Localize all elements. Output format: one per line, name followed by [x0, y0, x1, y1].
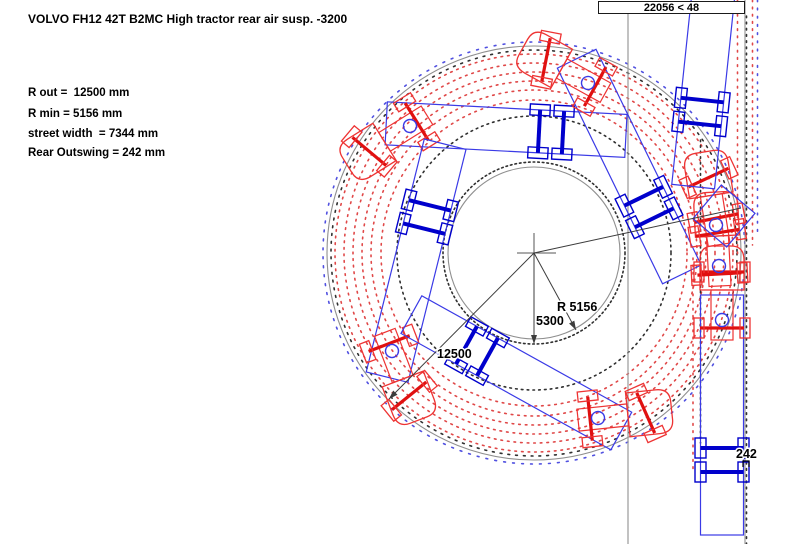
swept-path-plot: 12500R 51565300242	[0, 0, 800, 544]
vehicle-title: VOLVO FH12 42T B2MC High tractor rear ai…	[28, 12, 347, 26]
dim-label-outswing: 242	[736, 447, 757, 461]
annotation-radius-outer: 12500	[389, 253, 534, 399]
measure-r-out: R out = 12500 mm	[28, 87, 129, 99]
lane-exit-trailer-trailer	[666, 0, 745, 189]
dim-label-radius-inner: R 5156	[557, 300, 597, 314]
snapshot-upper-right-tractor	[509, 21, 620, 119]
measure-street-width: street width = 7344 mm	[28, 128, 158, 140]
turning-circle-diagram: 12500R 51565300242 VOLVO FH12 42T B2MC H…	[0, 0, 800, 544]
measure-outswing: Rear Outswing = 242 mm	[28, 147, 165, 159]
status-readout: 22056 < 48	[598, 1, 745, 14]
dim-label-radius-mid: 5300	[536, 314, 564, 328]
measure-r-min: R min = 5156 mm	[28, 108, 122, 120]
dim-label-radius-outer: 12500	[437, 347, 472, 361]
